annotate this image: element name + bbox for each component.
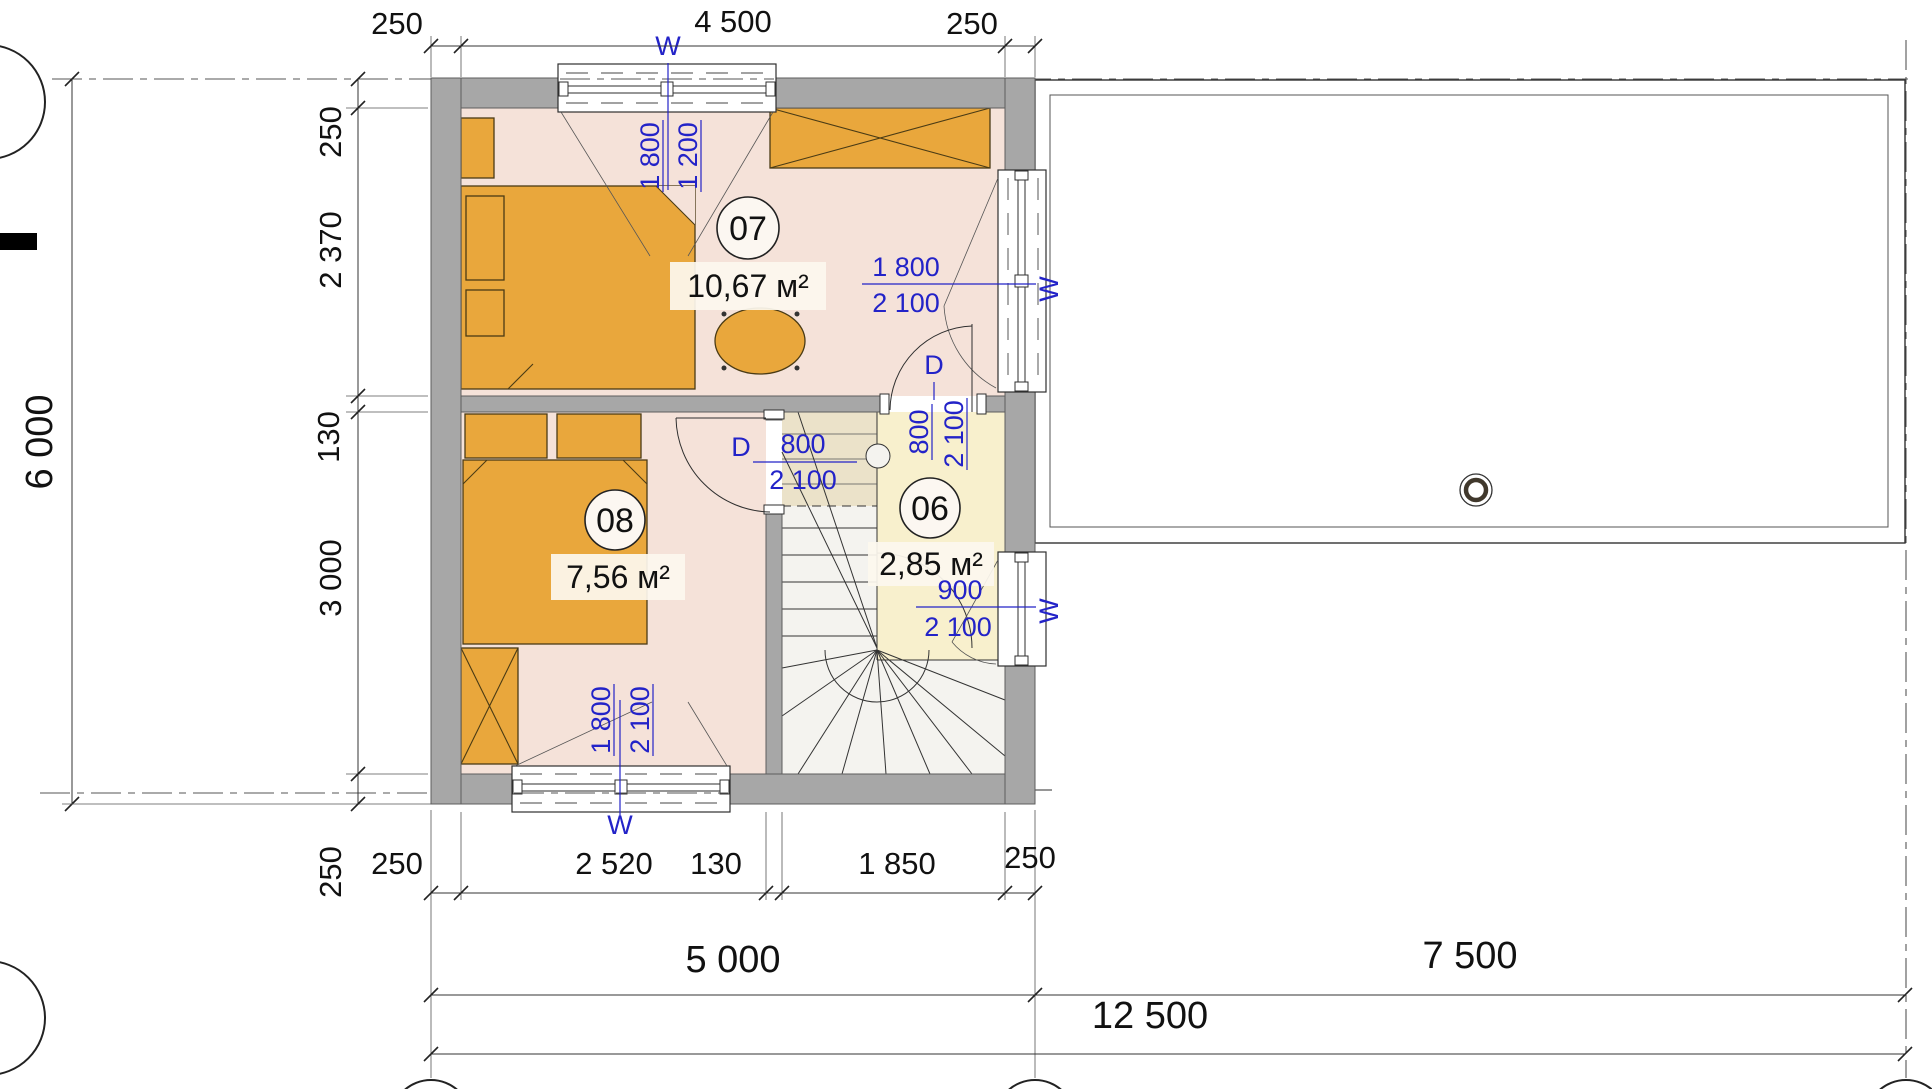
nightstand-07 bbox=[461, 118, 494, 178]
window-bedroom-right-tag: W bbox=[1034, 276, 1064, 302]
grid-bubble-axis-2 bbox=[995, 1080, 1075, 1089]
bed-08 bbox=[463, 460, 647, 644]
door-bedroom-width: 800 bbox=[780, 429, 825, 459]
dim-top-wall-right: 250 bbox=[946, 6, 998, 41]
door-hall-tag: D bbox=[924, 350, 944, 380]
annex-roof-outline bbox=[1035, 80, 1905, 543]
room-area-08: 7,56 м² bbox=[566, 559, 670, 595]
floor-plan-canvas: 07 10,67 м² 08 7,56 м² 06 2,85 м² W 1 80… bbox=[0, 0, 1932, 1089]
grid-bubble-top-left bbox=[0, 45, 45, 159]
dim-total-left: 5 000 bbox=[685, 939, 780, 981]
dim-bottom-partition: 130 bbox=[690, 846, 742, 881]
dimension-chain-left: 6 000 250 2 370 130 3 000 250 bbox=[19, 72, 431, 898]
window-top-height: 1 200 bbox=[673, 122, 703, 190]
dim-top-wall-left: 250 bbox=[371, 6, 423, 41]
room-area-07: 10,67 м² bbox=[687, 268, 809, 304]
grid-bubble-axis-1 bbox=[391, 1080, 471, 1089]
dim-left-total: 6 000 bbox=[19, 394, 61, 489]
grid-bubble-bottom-left bbox=[0, 961, 45, 1075]
dim-bottom-wall-left: 250 bbox=[371, 846, 423, 881]
pillow-07a bbox=[466, 196, 504, 280]
room-number-06: 06 bbox=[911, 490, 949, 528]
window-bottom-tag: W bbox=[607, 810, 633, 840]
door-hall-width: 800 bbox=[904, 409, 934, 454]
window-bedroom-right-height: 2 100 bbox=[872, 288, 940, 318]
room-number-07: 07 bbox=[729, 210, 767, 248]
floor-plan-drawing: 07 10,67 м² 08 7,56 м² 06 2,85 м² W 1 80… bbox=[0, 0, 1932, 1089]
window-bottom-width: 1 800 bbox=[586, 686, 616, 754]
dim-left-wall-top: 250 bbox=[313, 106, 348, 158]
dim-left-room07: 2 370 bbox=[313, 211, 348, 289]
dim-total-right: 7 500 bbox=[1422, 935, 1517, 977]
dim-bottom-room08: 2 520 bbox=[575, 846, 653, 881]
window-bottom-height: 2 100 bbox=[625, 686, 655, 754]
window-bedroom-right-width: 1 800 bbox=[872, 252, 940, 282]
dim-bottom-stair: 1 850 bbox=[858, 846, 936, 881]
table-07 bbox=[715, 308, 805, 374]
room-number-08: 08 bbox=[596, 502, 634, 540]
door-bedroom-height: 2 100 bbox=[769, 465, 837, 495]
chimney-symbol bbox=[1460, 474, 1492, 506]
grid-bubble-axis-3 bbox=[1866, 1080, 1932, 1089]
dim-total-overall: 12 500 bbox=[1092, 995, 1208, 1037]
dim-top-span: 4 500 bbox=[694, 4, 772, 39]
pillow-08a bbox=[465, 414, 547, 458]
door-hall-height: 2 100 bbox=[939, 400, 969, 468]
stair-newel-post bbox=[866, 444, 890, 468]
dim-bottom-wall-right: 250 bbox=[1004, 840, 1056, 875]
window-hall-right-tag: W bbox=[1034, 598, 1064, 624]
window-hall-right-width: 900 bbox=[937, 575, 982, 605]
dimension-totals: 5 000 7 500 12 500 bbox=[424, 935, 1912, 1061]
window-top-width: 1 800 bbox=[635, 122, 665, 190]
scale-bar bbox=[0, 233, 37, 250]
window-hall-right-height: 2 100 bbox=[924, 612, 992, 642]
pillow-08b bbox=[557, 414, 641, 458]
dim-left-wall-bottom: 250 bbox=[313, 846, 348, 898]
dim-left-partition: 130 bbox=[311, 411, 346, 463]
door-bedroom-tag: D bbox=[731, 432, 751, 462]
pillow-07b bbox=[466, 290, 504, 336]
dim-left-room08: 3 000 bbox=[313, 539, 348, 617]
